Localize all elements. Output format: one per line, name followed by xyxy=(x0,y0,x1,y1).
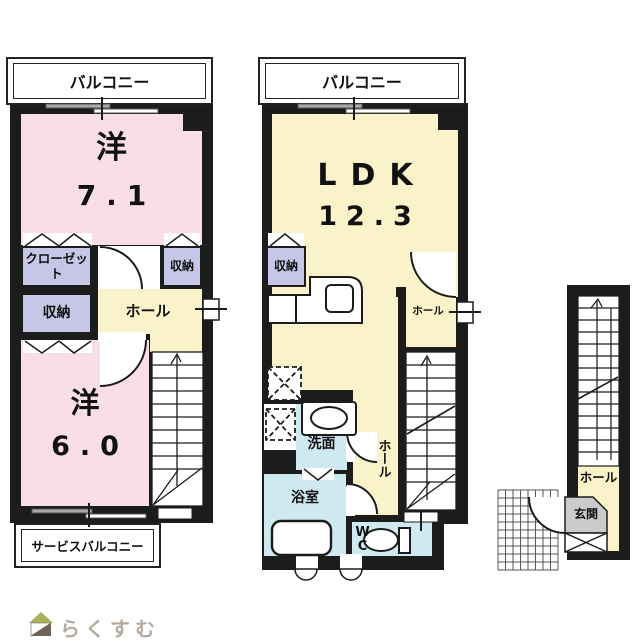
wall-stub xyxy=(396,287,406,297)
wall-notch-left xyxy=(183,114,202,131)
entrance-door xyxy=(529,497,565,533)
ldk-name-label: LDK xyxy=(272,156,458,196)
closet-label: クローゼット xyxy=(23,248,90,285)
bathroom xyxy=(264,474,346,556)
balcony-left-label: バルコニー xyxy=(13,63,206,99)
stairwell-right xyxy=(406,352,456,510)
room2-size-label: 6.0 xyxy=(21,428,149,466)
room2-name-label: 洋 xyxy=(21,384,149,424)
room1-name-label: 洋 xyxy=(21,130,202,168)
service-balcony: サービスバルコニー xyxy=(14,523,161,568)
storage-left-label: 収納 xyxy=(21,293,92,334)
entrance-label: 玄関 xyxy=(565,506,607,524)
washroom-label: 洗面 xyxy=(296,434,347,454)
hall-left-label: ホール xyxy=(98,296,198,328)
ldk-door-vestibule xyxy=(398,252,458,297)
exterior-notch xyxy=(444,524,468,570)
balcony-left: バルコニー xyxy=(6,57,213,105)
stairwell-entrance xyxy=(578,296,619,466)
floorplan-page: { "colors": { "room_pink": "#f9dee9", "r… xyxy=(0,0,640,640)
service-balcony-label: サービスバルコニー xyxy=(21,529,154,562)
entrance-hall-label: ホール xyxy=(578,468,619,488)
wall-notch-right xyxy=(438,114,458,130)
balcony-right-label: バルコニー xyxy=(265,63,459,99)
hall-upper-right-label: ホール xyxy=(406,301,450,321)
brand-logo-text: らくすむ xyxy=(60,613,160,642)
wc-label: WC xyxy=(355,524,370,556)
hall-lower-right-label: ホール xyxy=(372,420,392,496)
stairwell-left xyxy=(152,352,203,506)
storage-right-label: 収納 xyxy=(162,246,202,287)
bathroom-label: 浴室 xyxy=(264,488,346,508)
washer-alcove xyxy=(264,404,298,450)
doorway-room1-hall xyxy=(98,246,160,289)
balcony-right: バルコニー xyxy=(258,57,466,105)
ldk-size-label: 12.3 xyxy=(272,198,458,236)
brand-house-icon xyxy=(29,612,53,636)
room1-size-label: 7.1 xyxy=(21,176,202,216)
entrance-tile-grid xyxy=(498,490,558,570)
storage-ldk-label: 収納 xyxy=(266,246,306,287)
